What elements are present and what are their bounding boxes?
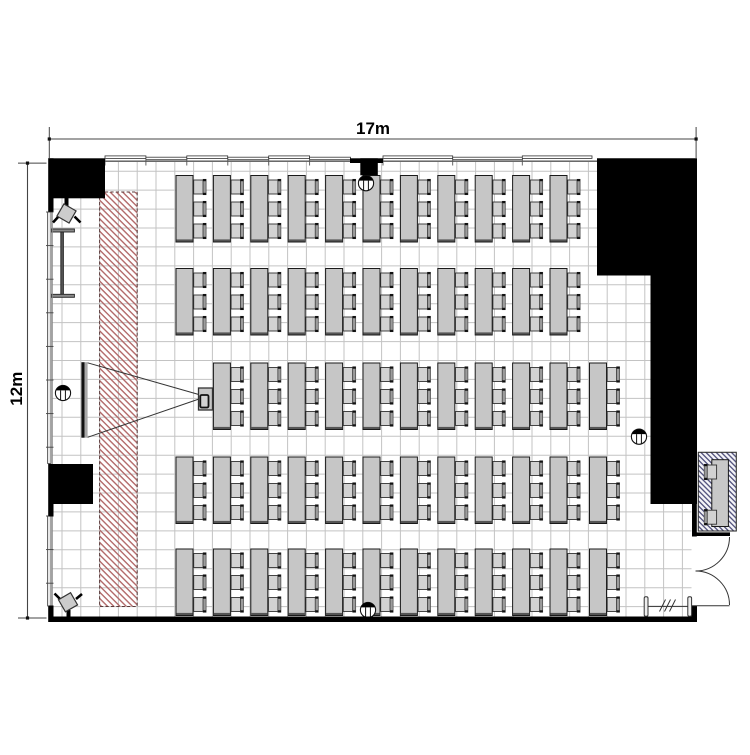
- svg-text:17m: 17m: [356, 119, 390, 138]
- svg-text:12m: 12m: [7, 372, 26, 406]
